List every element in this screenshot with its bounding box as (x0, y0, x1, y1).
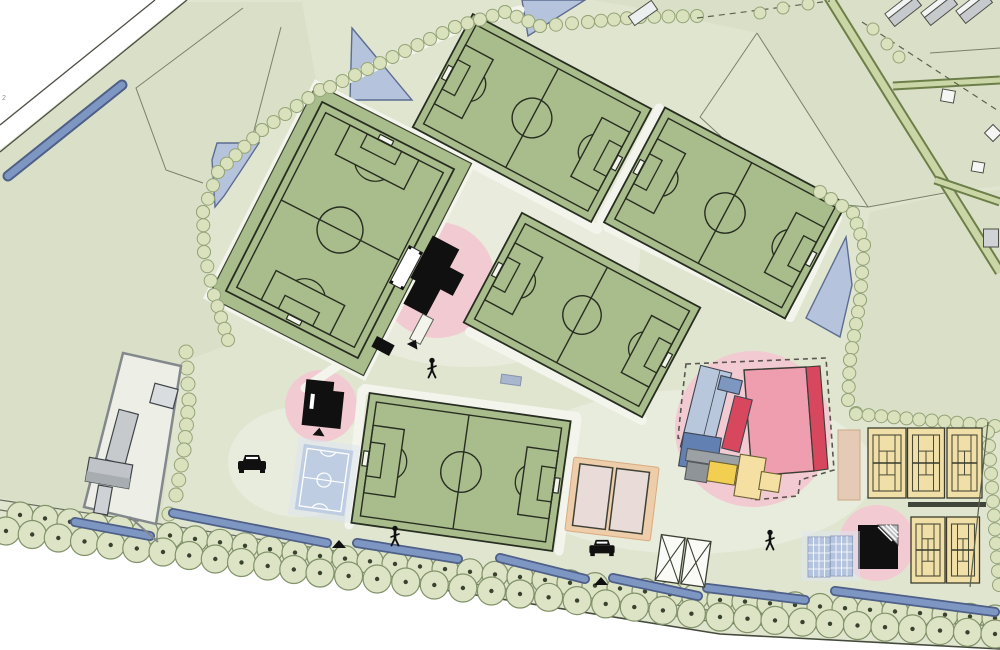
football-pitch-5 (351, 393, 570, 551)
block-gray-small (685, 461, 710, 482)
block-pale-yellow-small (759, 472, 782, 493)
outbuilding (941, 89, 956, 103)
hedgerow-tree (802, 0, 814, 10)
futsal-court (288, 437, 360, 523)
hedgerow-tree (893, 51, 905, 63)
tennis-court-3 (947, 428, 982, 498)
padel-court-1 (808, 537, 830, 577)
hedgerow-tree (777, 2, 789, 14)
site-plan-map: 2 (0, 0, 1000, 650)
tennis-court-1 (868, 428, 906, 498)
site-plan-canvas: 2 (0, 0, 1000, 650)
outbuilding (971, 161, 985, 173)
road-marker-label: 2 (2, 95, 6, 102)
padel-court-2 (831, 536, 853, 576)
map-layers (0, 0, 1000, 650)
tennis-court-2 (908, 428, 945, 498)
block-yellow (707, 461, 738, 485)
tennis-court-4 (911, 517, 945, 583)
hedgerow-tree (881, 38, 893, 50)
tennis-pavilion-pale (838, 430, 860, 500)
beach-courts (565, 457, 659, 541)
hedgerow-tree (754, 7, 766, 19)
tennis-divider-wall (908, 502, 986, 507)
outbuilding (984, 229, 999, 247)
clubhouse-tennis (858, 525, 898, 569)
farm-parcel-3 (849, 190, 1000, 422)
hedgerow-tree (867, 23, 879, 35)
